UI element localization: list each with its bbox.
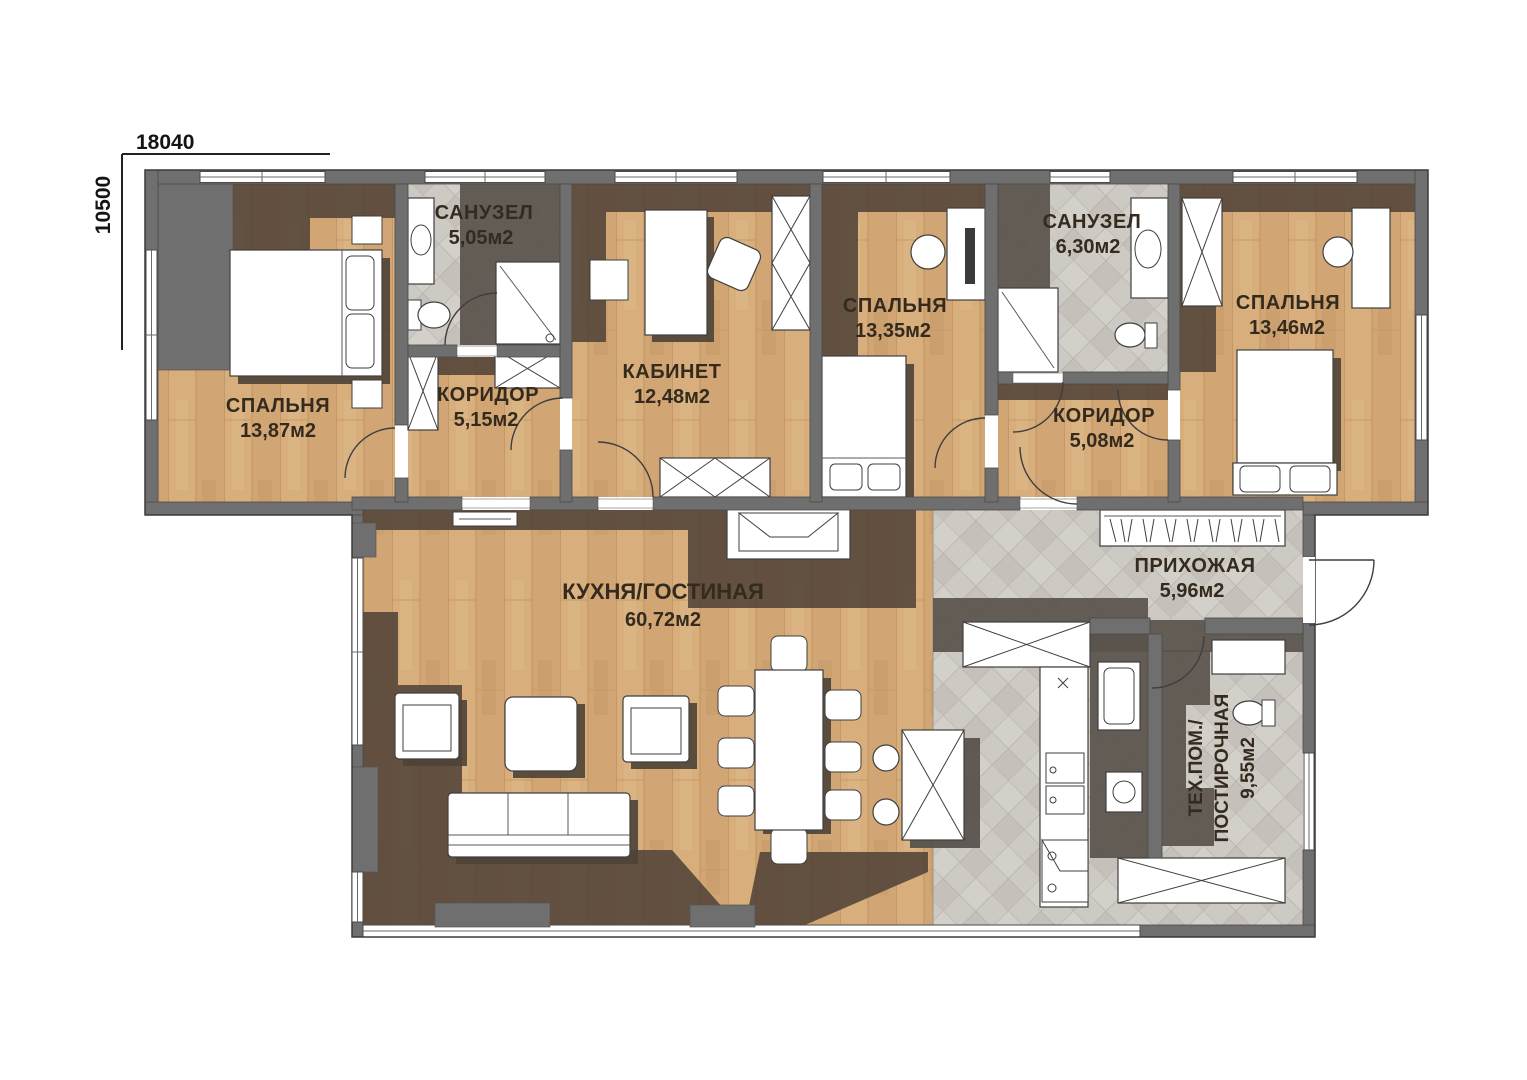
dining-chair-icon: [771, 828, 807, 864]
bedroom2-left-shadow: [822, 212, 858, 362]
wall-interior-h: [1077, 497, 1303, 510]
door-threshold: [1169, 391, 1179, 439]
wall-pier: [690, 905, 755, 927]
door-threshold: [598, 499, 653, 508]
label-tech-name-1: ТЕХ.ПОМ./: [1186, 719, 1207, 817]
door-threshold: [396, 426, 407, 477]
window: [1304, 753, 1314, 850]
wall-partition-v: [1168, 440, 1180, 502]
monitor-icon: [965, 228, 975, 284]
toilet-icon: [418, 302, 450, 328]
dining-chair-icon: [771, 636, 807, 672]
low-cabinet-icon: [660, 458, 770, 497]
bed-icon: [1237, 350, 1333, 463]
sofa-icon: [448, 793, 630, 857]
sink-bowl: [1046, 786, 1084, 814]
label-tech-name-2: ПОСТИРОЧНАЯ: [1212, 694, 1233, 843]
dining-chair-icon: [825, 690, 861, 720]
door-threshold: [462, 499, 530, 508]
wall-partition-v: [985, 468, 998, 502]
floor-plan-svg: СПАЛЬНЯ 13,87м2 САНУЗЕЛ 5,05м2 КОРИДОР 5…: [0, 0, 1527, 1080]
label-bedroom3-name: СПАЛЬНЯ: [1236, 292, 1340, 314]
toilet-icon: [1115, 323, 1145, 347]
pillow-icon: [1290, 466, 1330, 492]
window: [146, 250, 157, 420]
label-hallway-area: 5,96м2: [1160, 580, 1225, 602]
kitchen-top-shadow: [363, 510, 688, 530]
pillow-icon: [830, 464, 862, 490]
dining-table-icon: [755, 670, 823, 830]
label-bathroom1-name: САНУЗЕЛ: [435, 202, 534, 224]
wall-left-bottom: [352, 745, 363, 767]
cabinet-icon: [590, 260, 628, 300]
label-bathroom1-area: 5,05м2: [449, 227, 514, 249]
front-door-arc: [1309, 560, 1374, 625]
dining-chair-icon: [718, 738, 754, 768]
sink-icon: [1135, 230, 1161, 268]
water-heater-icon: [1106, 772, 1142, 812]
floor-plan-page: СПАЛЬНЯ 13,87м2 САНУЗЕЛ 5,05м2 КОРИДОР 5…: [0, 0, 1527, 1080]
bedroom1-pier: [158, 184, 233, 370]
window: [425, 172, 545, 183]
pillow-icon: [1240, 466, 1280, 492]
pillow-icon: [346, 314, 374, 368]
wardrobe-icon: [772, 196, 810, 330]
wall-partition-v: [810, 184, 822, 502]
wall-partition-v: [560, 450, 572, 502]
label-tech-area: 9,55м2: [1238, 737, 1259, 799]
wall-bathroom2: [998, 372, 1013, 384]
bar-stool-icon: [873, 799, 899, 825]
label-bedroom1-area: 13,87м2: [240, 420, 316, 442]
door-threshold: [561, 399, 571, 449]
label-bedroom1-name: СПАЛЬНЯ: [226, 395, 330, 417]
wall-bottom-left-stub: [145, 502, 363, 515]
door-threshold: [1013, 373, 1063, 383]
label-bedroom2-area: 13,35м2: [855, 320, 931, 342]
wall-bottom-solid: [1140, 925, 1315, 937]
label-corridor2-area: 5,08м2: [1070, 430, 1135, 452]
wall-pier: [435, 903, 550, 927]
nightstand-icon: [352, 216, 382, 244]
label-kitchen-name: КУХНЯ/ГОСТИНАЯ: [562, 579, 764, 604]
wall-partition-v: [1168, 184, 1180, 390]
wall-partition-v: [395, 478, 408, 502]
dining-chair-icon: [718, 786, 754, 816]
dining-chair-icon: [718, 686, 754, 716]
tv-unit-inner: [739, 513, 838, 551]
wall-interior-h: [653, 497, 1020, 510]
label-bedroom2-name: СПАЛЬНЯ: [843, 295, 947, 317]
pillow-icon: [868, 464, 900, 490]
dining-chair-icon: [825, 742, 861, 772]
wall-right-bottom: [1303, 850, 1315, 937]
armchair-seat: [403, 705, 451, 751]
wall-bathroom1: [408, 345, 457, 357]
window: [823, 172, 950, 183]
chair-icon: [1323, 237, 1353, 267]
wall-left-bottom: [352, 922, 363, 937]
toilet-tank: [1262, 700, 1275, 726]
wall-partition-v: [985, 184, 998, 415]
sink-icon: [411, 225, 431, 255]
window: [1050, 172, 1110, 183]
wall-pier: [352, 767, 378, 872]
pillow-icon: [346, 256, 374, 310]
armchair-seat: [631, 708, 681, 754]
toilet-icon: [1233, 701, 1265, 725]
label-bedroom3-area: 13,46м2: [1249, 317, 1325, 339]
wall-tech-left: [1148, 634, 1162, 858]
label-bathroom2-area: 6,30м2: [1056, 236, 1121, 258]
label-office-name: КАБИНЕТ: [623, 361, 722, 383]
desk-icon: [1352, 208, 1390, 308]
window: [1416, 315, 1427, 440]
wall-tech-top: [1090, 618, 1150, 634]
window: [352, 872, 363, 922]
dimension-width-label: 18040: [136, 131, 194, 154]
wall-right-bottom: [1303, 515, 1315, 557]
window: [200, 172, 325, 183]
wall-tech-top: [1205, 618, 1303, 634]
label-hallway-name: ПРИХОЖАЯ: [1134, 555, 1255, 577]
label-kitchen-area: 60,72м2: [625, 609, 701, 631]
toilet-tank: [1145, 323, 1157, 348]
window: [1233, 172, 1357, 183]
window: [352, 558, 363, 745]
washer-door: [1104, 668, 1134, 724]
sink-bowl: [1046, 753, 1084, 783]
coffee-table-icon: [505, 697, 577, 771]
wall-bathroom1: [497, 345, 560, 357]
wall-partition-v: [395, 184, 408, 425]
wall-bathroom2: [1063, 372, 1168, 384]
label-office-area: 12,48м2: [634, 386, 710, 408]
wall-right-stub: [1303, 502, 1428, 515]
shelf-icon: [1212, 640, 1285, 674]
front-door-opening: [1303, 557, 1315, 623]
label-corridor1-area: 5,15м2: [454, 409, 519, 431]
wall-partition-v: [560, 184, 572, 398]
label-corridor1-name: КОРИДОР: [437, 384, 539, 406]
dimension-height-label: 10500: [92, 176, 115, 234]
wall-pier: [352, 523, 376, 557]
chair-icon: [911, 235, 945, 269]
dining-chair-icon: [825, 790, 861, 820]
window: [615, 172, 737, 183]
bar-stool-icon: [873, 745, 899, 771]
corridor2-shadow: [998, 382, 1168, 400]
door-threshold: [457, 346, 497, 356]
wall-right-bottom: [1303, 623, 1315, 753]
nightstand-icon: [352, 380, 382, 408]
door-threshold: [986, 416, 997, 467]
label-bathroom2-name: САНУЗЕЛ: [1043, 211, 1142, 233]
desk-icon: [645, 210, 707, 335]
label-corridor2-name: КОРИДОР: [1053, 405, 1155, 427]
